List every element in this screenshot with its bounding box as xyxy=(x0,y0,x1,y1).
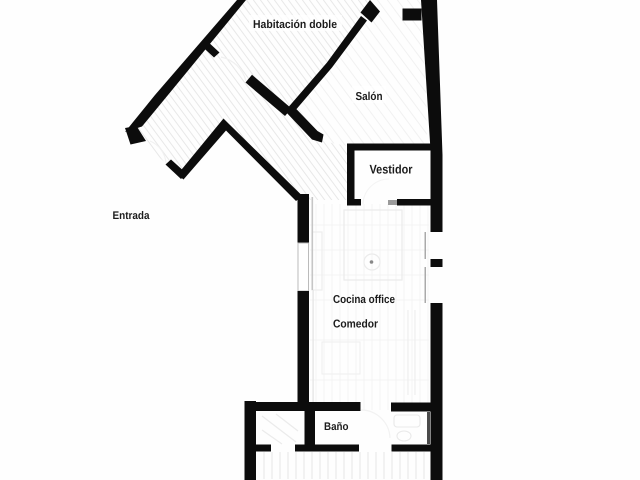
svg-text:Vestidor: Vestidor xyxy=(370,163,413,177)
svg-text:Cocina office: Cocina office xyxy=(333,294,395,306)
svg-text:Habitación doble: Habitación doble xyxy=(253,19,337,31)
svg-text:Baño: Baño xyxy=(324,421,349,433)
svg-text:Entrada: Entrada xyxy=(113,210,151,222)
svg-text:Salón: Salón xyxy=(356,91,383,103)
svg-text:Comedor: Comedor xyxy=(333,319,378,331)
